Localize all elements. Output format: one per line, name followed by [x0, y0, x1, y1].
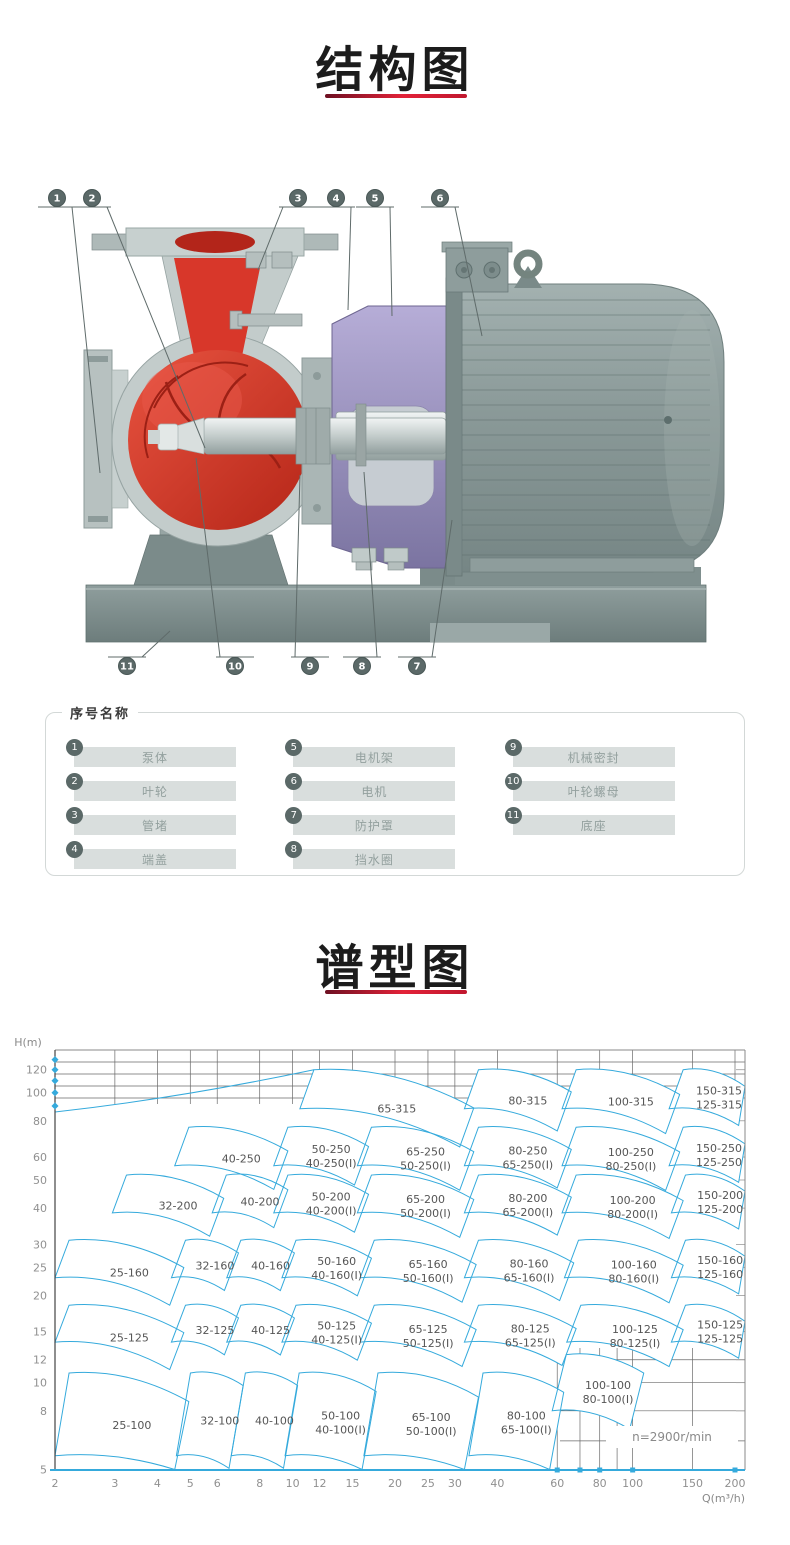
motor-feet [470, 558, 694, 572]
pump-model-label: 150-200 [697, 1189, 743, 1202]
legend-item-number: 9 [505, 739, 522, 756]
pump-model-label: 65-125(I) [505, 1336, 556, 1349]
legend-item-number: 3 [66, 807, 83, 824]
pump-model-label: 100-315 [608, 1096, 654, 1109]
pump-model-label: 65-250(I) [502, 1159, 553, 1172]
y-tick-label: 80 [33, 1115, 47, 1128]
lifting-eye [514, 253, 542, 288]
pump-model-label: 65-125 [409, 1323, 448, 1336]
pump-model-label: 150-250 [696, 1142, 742, 1155]
pump-model-label: 65-250 [406, 1146, 445, 1159]
legend-item-bar: 电机架 [293, 747, 455, 767]
legend-item-bar: 底座 [513, 815, 675, 835]
pump-model-label: 80-160(I) [608, 1273, 659, 1286]
pump-model-label: 50-200(I) [400, 1207, 451, 1220]
diagram-callout-number: 5 [372, 194, 379, 205]
x-tick-label: 10 [286, 1477, 300, 1490]
pump-model-label: 65-100 [412, 1411, 451, 1424]
pump-model-label: 32-125 [195, 1324, 234, 1337]
legend-item: 7防护罩 [285, 807, 455, 828]
water-slinger-ring [356, 404, 366, 466]
diagram-callout-number: 4 [333, 194, 340, 205]
pump-model-label: 80-125 [511, 1322, 550, 1335]
y-tick-label: 5 [40, 1464, 47, 1477]
x-axis-label: Q(m³/h) [702, 1492, 745, 1505]
legend-item-bar: 端盖 [74, 849, 236, 869]
pump-model-label: 50-160(I) [403, 1272, 454, 1285]
parts-legend: 序号名称 1泵体2叶轮3管堵4端盖5电机架6电机7防护罩8挡水圈9机械密封10叶… [45, 712, 745, 876]
legend-item-label: 叶轮 [142, 783, 168, 800]
pump-model-label: 100-125 [612, 1323, 658, 1336]
legend-item: 8挡水圈 [285, 841, 455, 862]
x-tick-label: 20 [388, 1477, 402, 1490]
x-tick-label: 80 [593, 1477, 607, 1490]
pump-model-label: 40-100 [255, 1415, 294, 1428]
legend-item-bar: 电机 [293, 781, 455, 801]
legend-item-label: 电机架 [355, 749, 394, 766]
pump-model-label: 100-200 [610, 1194, 656, 1207]
legend-item-label: 机械密封 [568, 749, 620, 766]
mechanical-seal [296, 408, 330, 464]
pump-model-label: 80-315 [508, 1094, 547, 1107]
pump-model-label: 32-100 [200, 1415, 239, 1428]
legend-item-number: 4 [66, 841, 83, 858]
pump-model-label: 25-100 [112, 1419, 151, 1432]
pump-model-label: 40-250 [222, 1152, 261, 1165]
x-tick-label: 4 [154, 1477, 161, 1490]
pump-model-label: 50-200 [312, 1191, 351, 1204]
legend-item-label: 底座 [581, 817, 607, 834]
legend-item: 10叶轮螺母 [505, 773, 675, 794]
legend-item: 3管堵 [66, 807, 236, 828]
x-tick-label: 25 [421, 1477, 435, 1490]
structure-section-title: 结构图 [0, 30, 790, 100]
legend-item-label: 叶轮螺母 [568, 783, 620, 800]
x-tick-label: 2 [52, 1477, 59, 1490]
pump-model-label: 80-250 [508, 1145, 547, 1158]
legend-column: 9机械密封10叶轮螺母11底座 [505, 739, 724, 875]
x-tick-label: 200 [725, 1477, 746, 1490]
x-tick-label: 100 [622, 1477, 643, 1490]
y-tick-label: 40 [33, 1202, 47, 1215]
legend-item-number: 1 [66, 739, 83, 756]
pump-model-label: 50-160 [317, 1255, 356, 1268]
pump-model-label: 32-160 [195, 1259, 234, 1272]
legend-item: 5电机架 [285, 739, 455, 760]
x-tick-label: 8 [256, 1477, 263, 1490]
pump-model-label: 125-125 [697, 1333, 743, 1346]
terminal-box [442, 242, 512, 292]
pump-model-label: 40-250(I) [306, 1157, 357, 1170]
legend-item-label: 泵体 [142, 749, 168, 766]
pump-model-label: 65-100(I) [501, 1424, 552, 1437]
pump-model-label: 50-125 [317, 1320, 356, 1333]
x-tick-label: 3 [111, 1477, 118, 1490]
pump-model-label: 80-200 [508, 1192, 547, 1205]
spectrum-title-underline [325, 990, 467, 994]
pump-model-label: 125-200 [697, 1203, 743, 1216]
pump-model-label: 65-200 [406, 1193, 445, 1206]
pump-model-label: 25-125 [110, 1331, 149, 1344]
pump-model-label: 150-315 [696, 1085, 742, 1098]
legend-item-number: 10 [505, 773, 522, 790]
pump-structure-diagram: 1234561110987 [0, 118, 790, 700]
y-tick-label: 120 [26, 1064, 47, 1077]
diagram-callout-number: 3 [295, 194, 302, 205]
pump-model-label: 125-160 [697, 1268, 743, 1281]
y-tick-label: 60 [33, 1151, 47, 1164]
y-tick-label: 25 [33, 1261, 47, 1274]
pump-model-label: 150-125 [697, 1319, 743, 1332]
pump-model-label: 80-250(I) [605, 1160, 656, 1173]
pump-model-label: 125-250 [696, 1156, 742, 1169]
y-tick-label: 100 [26, 1087, 47, 1100]
legend-item-number: 11 [505, 807, 522, 824]
legend-item-bar: 叶轮螺母 [513, 781, 675, 801]
legend-item: 11底座 [505, 807, 675, 828]
structure-title-underline [325, 94, 467, 98]
legend-item: 6电机 [285, 773, 455, 794]
diagram-callout-number: 10 [228, 662, 242, 673]
legend-column: 5电机架6电机7防护罩8挡水圈 [285, 739, 504, 875]
y-tick-label: 10 [33, 1377, 47, 1390]
y-tick-label: 8 [40, 1405, 47, 1418]
speed-annotation: n=2900r/min [632, 1430, 712, 1444]
parts-legend-title: 序号名称 [62, 703, 138, 722]
pump-model-label: 50-100 [321, 1409, 360, 1422]
impeller-volute-red [128, 258, 308, 530]
legend-item: 4端盖 [66, 841, 236, 862]
pump-model-label: 80-200(I) [607, 1208, 658, 1221]
legend-item: 2叶轮 [66, 773, 236, 794]
legend-item-bar: 挡水圈 [293, 849, 455, 869]
x-tick-label: 15 [346, 1477, 360, 1490]
impeller-nut [158, 424, 178, 450]
x-tick-label: 6 [214, 1477, 221, 1490]
pump-model-label: 50-250(I) [400, 1160, 451, 1173]
pump-model-label: 40-160 [251, 1259, 290, 1272]
pump-model-label: 25-160 [110, 1267, 149, 1280]
pump-model-label: 40-125(I) [311, 1334, 362, 1347]
x-tick-label: 30 [448, 1477, 462, 1490]
legend-item: 9机械密封 [505, 739, 675, 760]
pump-model-label: 100-250 [608, 1146, 654, 1159]
pump-selection-chart: 65-31580-315100-315150-315125-31540-2505… [0, 1020, 790, 1545]
legend-item-label: 管堵 [142, 817, 168, 834]
pump-model-label: 80-100 [507, 1410, 546, 1423]
legend-item-label: 电机 [361, 783, 387, 800]
diagram-callout-number: 8 [359, 662, 366, 673]
pump-model-label: 50-100(I) [406, 1425, 457, 1438]
pump-model-label: 65-200(I) [502, 1206, 553, 1219]
motor [446, 278, 724, 576]
x-tick-label: 60 [550, 1477, 564, 1490]
y-tick-label: 15 [33, 1326, 47, 1339]
legend-item-bar: 机械密封 [513, 747, 675, 767]
legend-item: 1泵体 [66, 739, 236, 760]
pump-model-label: 40-100(I) [315, 1423, 366, 1436]
x-tick-label: 150 [682, 1477, 703, 1490]
legend-column: 1泵体2叶轮3管堵4端盖 [66, 739, 285, 875]
pump-model-label: 40-125 [251, 1324, 290, 1337]
pump-model-label: 80-160 [510, 1257, 549, 1270]
diagram-callout-number: 9 [307, 662, 314, 673]
x-tick-label: 12 [313, 1477, 327, 1490]
pump-model-label: 65-315 [377, 1102, 416, 1115]
y-axis-label: H(m) [14, 1036, 42, 1049]
pump-model-label: 100-100 [585, 1379, 631, 1392]
spectrum-section-title: 谱型图 [0, 928, 790, 998]
diagram-callout-number: 2 [89, 194, 96, 205]
pump-model-label: 80-100(I) [583, 1393, 634, 1406]
pump-model-label: 50-250 [312, 1143, 351, 1156]
pump-model-label: 80-125(I) [610, 1337, 661, 1350]
legend-item-bar: 泵体 [74, 747, 236, 767]
pump-model-label: 65-160(I) [504, 1271, 555, 1284]
y-tick-label: 12 [33, 1354, 47, 1367]
pump-model-label: 100-160 [611, 1259, 657, 1272]
motor-drain-plug [664, 416, 672, 424]
legend-item-label: 防护罩 [355, 817, 394, 834]
pump-model-label: 40-200 [241, 1195, 280, 1208]
x-tick-label: 40 [490, 1477, 504, 1490]
legend-item-number: 2 [66, 773, 83, 790]
legend-item-bar: 叶轮 [74, 781, 236, 801]
y-tick-label: 20 [33, 1289, 47, 1302]
pump-model-label: 50-125(I) [403, 1337, 454, 1350]
legend-item-label: 端盖 [142, 851, 168, 868]
discharge-flange [92, 228, 338, 256]
base-plate [86, 585, 706, 642]
pump-model-label: 32-200 [159, 1200, 198, 1213]
legend-item-bar: 防护罩 [293, 815, 455, 835]
pump-product-page: 结构图 [0, 0, 790, 1545]
pump-model-label: 65-160 [409, 1258, 448, 1271]
legend-item-bar: 管堵 [74, 815, 236, 835]
x-tick-label: 5 [187, 1477, 194, 1490]
y-tick-label: 50 [33, 1174, 47, 1187]
y-tick-label: 30 [33, 1238, 47, 1251]
diagram-callout-number: 6 [437, 194, 444, 205]
diagram-callout-number: 1 [54, 194, 61, 205]
pump-model-label: 150-160 [697, 1254, 743, 1267]
pump-model-label: 40-200(I) [306, 1205, 357, 1218]
pump-model-label: 125-315 [696, 1099, 742, 1112]
legend-item-label: 挡水圈 [355, 851, 394, 868]
diagram-callout-number: 7 [414, 662, 421, 673]
pump-model-label: 40-160(I) [311, 1269, 362, 1282]
diagram-callout-number: 11 [120, 662, 134, 673]
